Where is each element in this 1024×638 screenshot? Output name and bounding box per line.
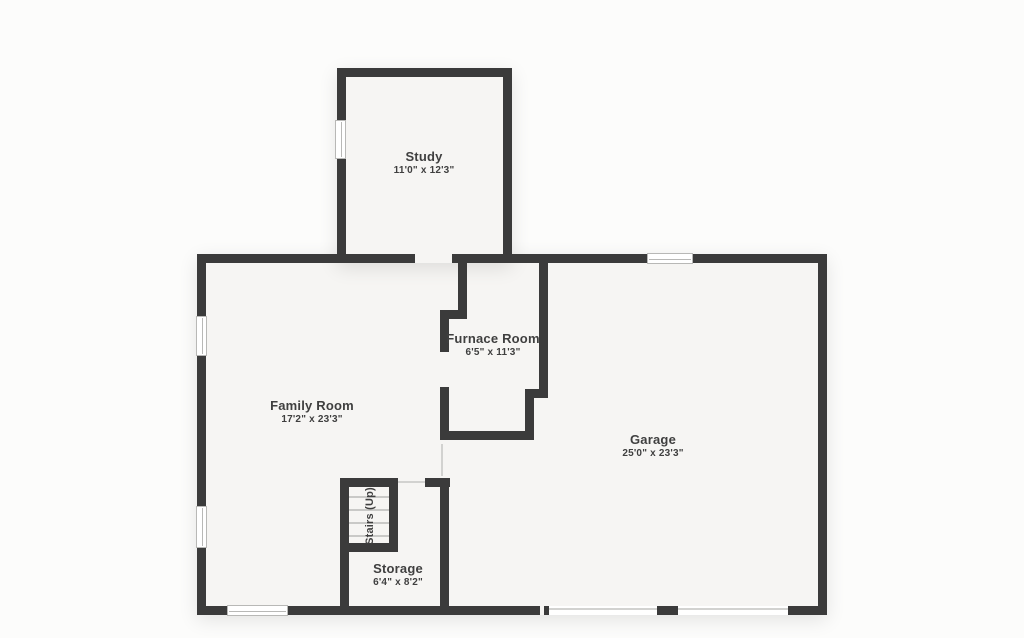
study-dimensions: 11'0" x 12'3" — [394, 164, 455, 177]
storage-dimensions: 6'4" x 8'2" — [373, 576, 423, 589]
furnace-room-name: Furnace Room — [446, 331, 539, 346]
wall-bottom-mid-segment — [288, 606, 540, 615]
wall-left-mid-segment — [197, 356, 206, 506]
garage-name: Garage — [622, 432, 683, 447]
garage-door-left-symbol — [549, 606, 657, 615]
wall-right — [818, 254, 827, 615]
wall-top-right-segment — [693, 254, 827, 263]
garage-label: Garage 25'0" x 23'3" — [622, 432, 683, 460]
study-wall-top — [337, 68, 512, 77]
wall-left-lower-segment — [197, 548, 206, 615]
family-room-name: Family Room — [270, 398, 354, 413]
stairs-wall-right — [389, 478, 398, 552]
study-wall-left-lower — [337, 159, 346, 263]
wall-top-mid-segment — [452, 254, 647, 263]
wall-top-left-segment — [197, 254, 415, 263]
furnace-wall-right-jog — [525, 389, 548, 398]
stairs-label: Stairs (Up) — [364, 487, 376, 545]
storage-wall-right — [440, 478, 449, 615]
furnace-wall-right — [539, 263, 548, 398]
study-name: Study — [394, 149, 455, 164]
furnace-wall-left-upper — [458, 263, 467, 313]
family-room-label: Family Room 17'2" x 23'3" — [270, 398, 354, 426]
study-window-symbol — [335, 120, 346, 159]
family-room-dimensions: 17'2" x 23'3" — [270, 413, 354, 426]
furnace-wall-left-jog — [440, 310, 467, 319]
study-label: Study 11'0" x 12'3" — [394, 149, 455, 177]
study-wall-left-upper — [337, 68, 346, 120]
storage-wall-top-right-segment — [425, 478, 450, 487]
wall-bottom-right-segment — [788, 606, 827, 615]
family-room-window-lower-symbol — [196, 506, 207, 548]
wall-bottom-left-segment — [197, 606, 227, 615]
furnace-room-label: Furnace Room 6'5" x 11'3" — [446, 331, 539, 359]
storage-name: Storage — [373, 561, 423, 576]
garage-entry-door-line — [441, 444, 443, 476]
furnace-wall-bottom — [440, 431, 533, 440]
furnace-wall-right-lower — [525, 398, 534, 440]
garage-dimensions: 25'0" x 23'3" — [622, 447, 683, 460]
garage-door-right-symbol — [678, 606, 788, 615]
garage-door-center-post — [657, 606, 678, 615]
floor-plan: Study 11'0" x 12'3" Family Room 17'2" x … — [0, 0, 1024, 638]
garage-window-symbol — [647, 253, 693, 264]
wall-left-upper-segment — [197, 254, 206, 316]
family-room-window-bottom-symbol — [227, 605, 288, 616]
storage-doorway-line — [398, 481, 425, 483]
study-wall-right — [503, 68, 512, 263]
storage-label: Storage 6'4" x 8'2" — [373, 561, 423, 589]
family-room-window-upper-symbol — [196, 316, 207, 356]
furnace-room-dimensions: 6'5" x 11'3" — [446, 346, 539, 359]
